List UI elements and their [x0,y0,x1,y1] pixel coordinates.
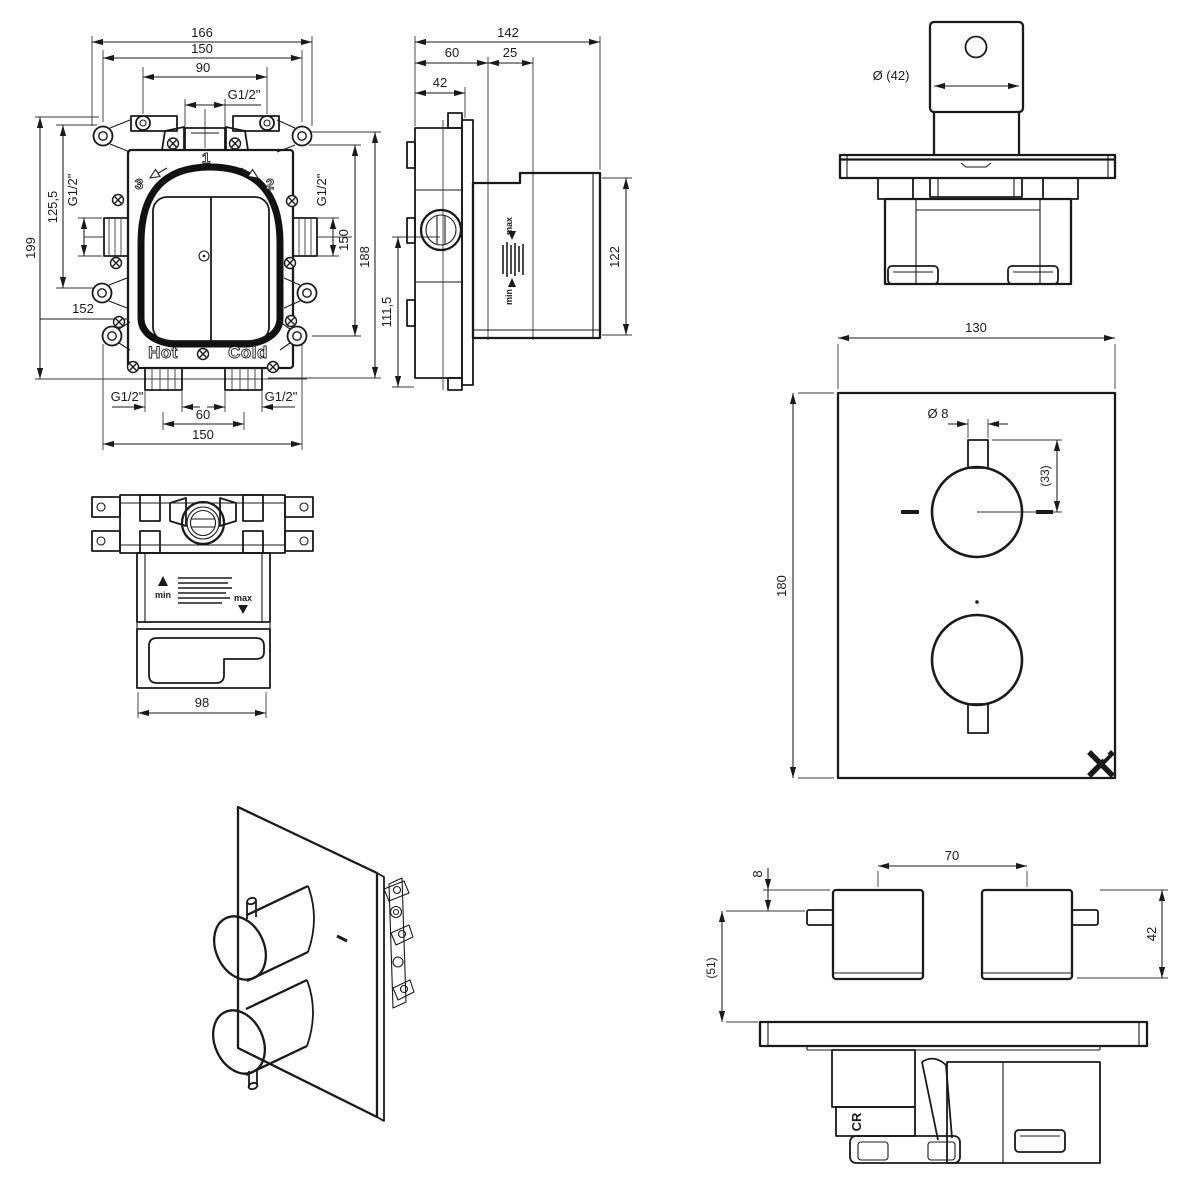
side-inlet [421,210,461,250]
hot-label: Hot [148,343,178,362]
dim-knob-proj-label: (51) [704,957,718,978]
technical-drawing: 166 150 90 G1/2" 199 125,5 G1/2" 152 [0,0,1200,1200]
grub-screw-hole [966,37,987,58]
rear-fixing-hardware [384,878,414,1008]
index-dot [975,600,979,604]
top-port-boss [182,502,224,544]
temperature-knob-3d [204,886,314,988]
dim-bottom-fixing-label: 150 [192,427,214,442]
flow-arrow-left [150,170,160,179]
dim-height-body-label: 188 [357,246,372,268]
thread-top-label: G1/2" [228,87,261,102]
box-front-dimensions: 166 150 90 G1/2" 199 125,5 G1/2" 152 [23,25,381,450]
min-label: min [504,289,514,305]
crosswater-x-logo [1089,752,1113,776]
flow-arrow-right [248,170,258,179]
cold-label: Cold [228,343,268,362]
dim-width-overall-label: 166 [191,25,213,40]
dim-knob-spacing-label: 70 [945,848,959,863]
flow-pin-top [1072,910,1098,925]
box-lower-inner [149,638,264,683]
wall-plate-top [760,1022,1147,1046]
flange-plate [462,120,473,385]
plate-dimensions: 130 180 Ø 8 (33) [774,320,1115,778]
box-profile [415,128,462,378]
dim-width-fixing-label: 150 [191,41,213,56]
view-box-front: 166 150 90 G1/2" 199 125,5 G1/2" 152 [23,25,381,450]
min-label-top: min [155,590,171,600]
view-perspective [203,807,414,1121]
dim-body-width-label: 98 [195,695,209,710]
depth-label-sticker: max min [503,217,523,305]
flow-knob-top [982,890,1072,979]
flow-knob [932,615,1022,705]
dim-knob-dia-top-label: 42 [1144,927,1159,941]
valve-body-rear [885,199,1071,284]
trim-top-dimensions: 70 8 (51) 42 [704,848,1168,1022]
temp-pin-top [807,910,833,925]
flow-stop-stem [968,704,988,733]
fixing-lug [288,327,307,346]
dim-knob-dia-label: Ø (42) [873,68,910,83]
dim-width-ports-label: 90 [196,60,210,75]
temp-stop-stem [968,440,988,468]
cr-logo: CR [849,1112,864,1131]
box-front-body: 1 2 3 Hot Cold [93,116,318,390]
view-box-side: 142 60 25 42 111,5 122 [379,25,632,390]
dim-pin-offset-label: 8 [750,870,765,877]
dim-stem-dia-label: Ø 8 [928,406,949,421]
dim-height-body-side-label: 122 [607,246,622,268]
view-box-top: min max 98 [92,495,313,718]
temperature-knob-top [833,890,923,979]
dim-152-label: 152 [72,301,94,316]
dim-front-depth-label: 42 [433,75,447,90]
fixing-lug [93,284,112,303]
fixing-lug [293,127,312,146]
dim-depth-box-label: 60 [445,45,459,60]
port-2-label: 2 [266,176,274,193]
plate-perspective [238,807,377,1117]
flow-knob-3d [203,980,313,1090]
cartridge-housing [473,173,600,338]
thread-left-label: G1/2" [65,173,80,206]
dim-bottom-spacing-label: 60 [196,407,210,422]
dim-height-overall-label: 199 [23,237,38,259]
view-trim-side: Ø (42) [840,22,1115,284]
dim-height-lower-label: 111,5 [379,297,394,328]
dim-depth-overall-label: 142 [497,25,519,40]
dim-plate-height-label: 180 [774,575,789,597]
index-mark-3d [337,936,347,941]
dim-height-fixing-label: 150 [336,229,351,251]
view-trim-top: 70 8 (51) 42 [704,848,1168,1163]
view-plate-front: 130 180 Ø 8 (33) [774,320,1115,778]
depth-label-sticker-top: min max [155,576,252,614]
fixing-lug [94,127,113,146]
dim-plate-width-label: 130 [965,320,987,335]
dim-stem-len-label: (33) [1038,465,1052,486]
dim-height-upper-label: 125,5 [45,191,60,224]
rough-in-body-top: CR [832,1050,1100,1163]
thread-bottom-right-label: G1/2" [265,389,298,404]
knob-side [930,22,1023,112]
box-side-body: max min [407,113,600,390]
port-1-label: 1 [202,150,210,167]
max-label-top: max [234,593,252,603]
fixing-lug [103,327,122,346]
side-port-left [104,218,128,256]
port-3-label: 3 [135,176,143,193]
thread-bottom-left-label: G1/2" [111,389,144,404]
dim-adjust-range-label: 25 [503,45,517,60]
thread-right-label: G1/2" [314,173,329,206]
fixing-lug [298,284,317,303]
wall-plate [838,393,1115,778]
box-side-dimensions: 142 60 25 42 111,5 122 [379,25,632,387]
